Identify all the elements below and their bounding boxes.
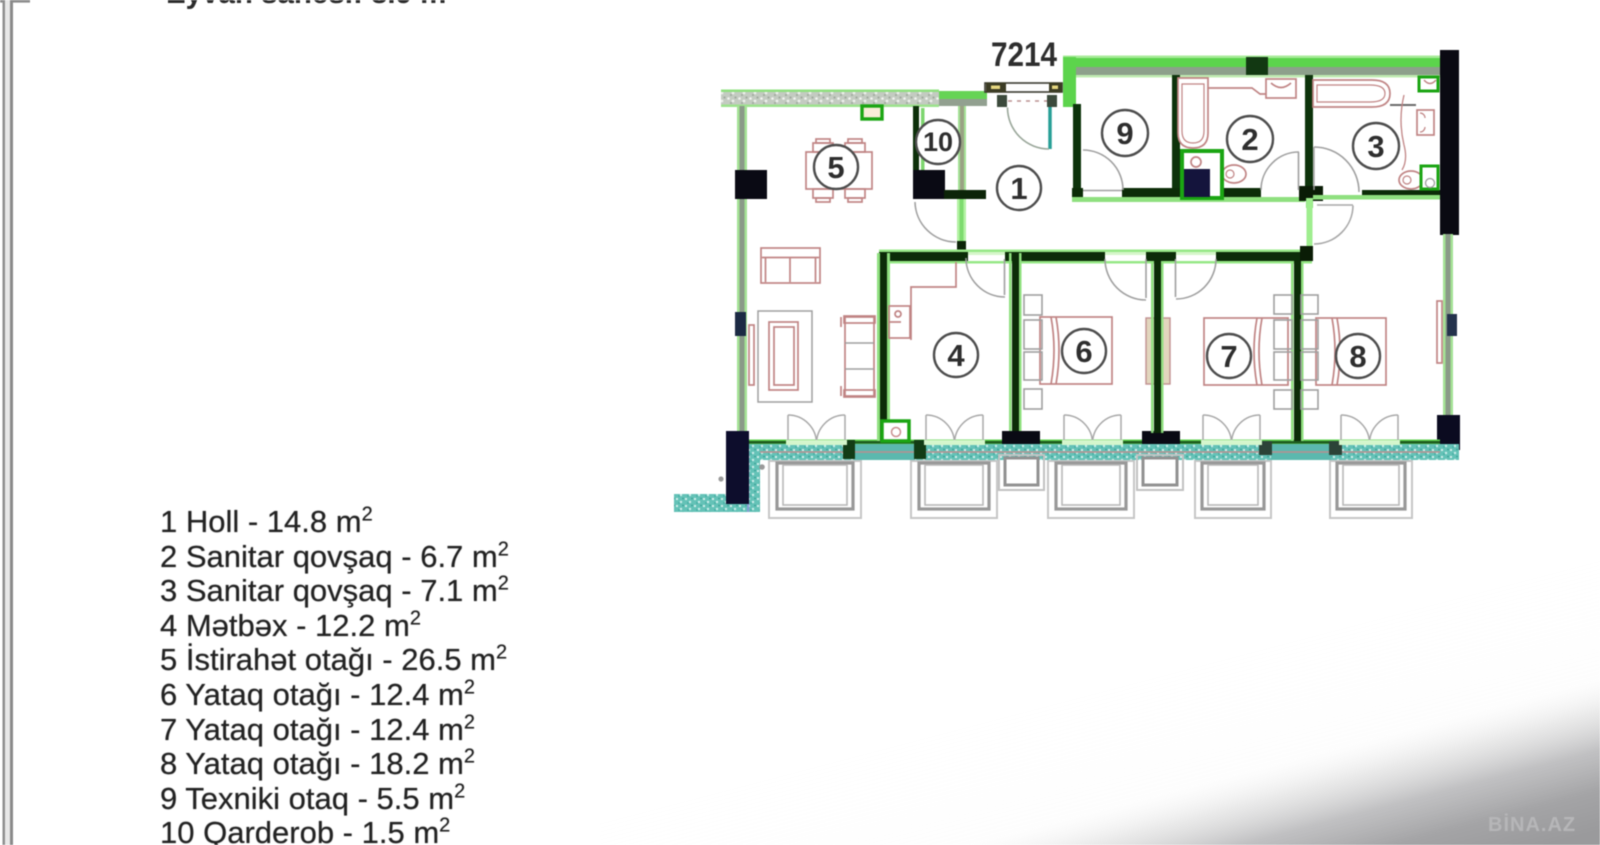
- svg-text:5: 5: [827, 150, 844, 185]
- svg-text:4: 4: [947, 338, 965, 373]
- svg-text:7214: 7214: [991, 36, 1057, 74]
- svg-text:7: 7: [1220, 339, 1237, 374]
- svg-text:10: 10: [923, 127, 953, 157]
- svg-text:8: 8: [1349, 339, 1366, 374]
- svg-text:6: 6: [1075, 334, 1092, 369]
- svg-text:1: 1: [1010, 171, 1027, 206]
- svg-text:9: 9: [1116, 116, 1133, 151]
- svg-text:3: 3: [1367, 129, 1384, 164]
- svg-text:2: 2: [1241, 122, 1258, 157]
